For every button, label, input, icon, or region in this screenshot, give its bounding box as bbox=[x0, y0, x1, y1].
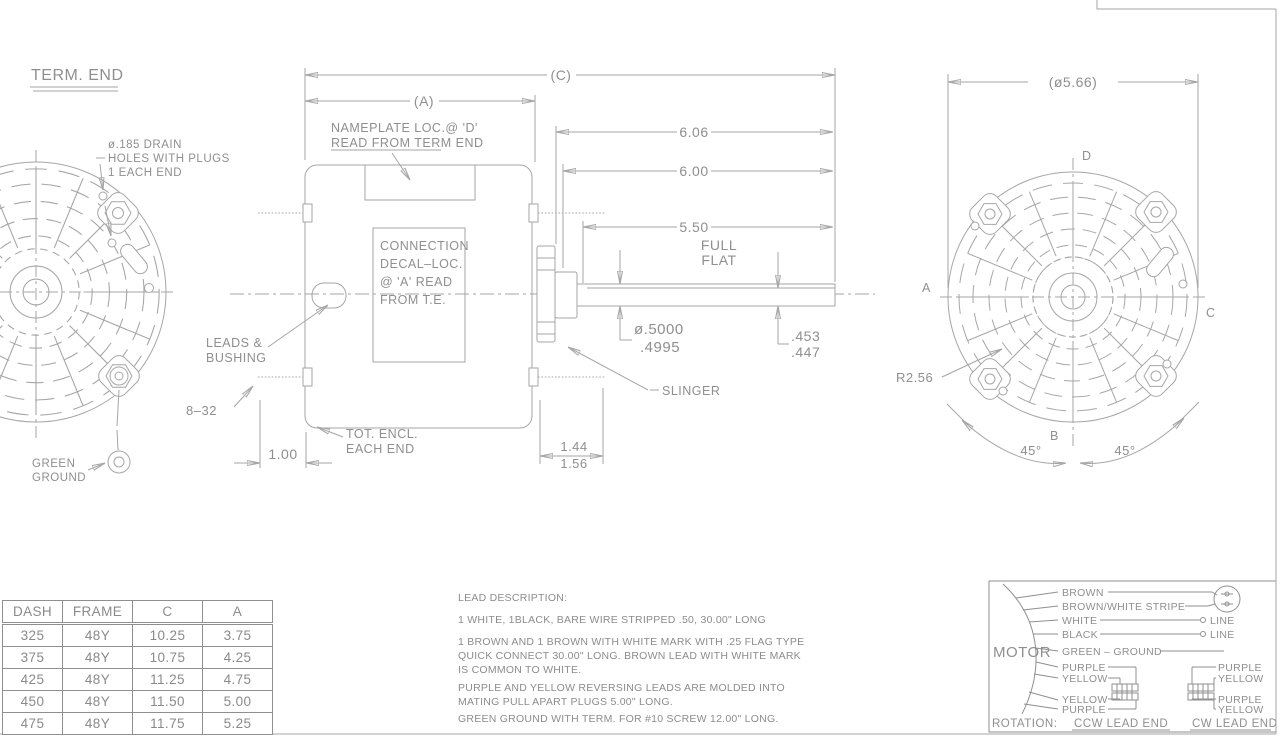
hub-dim: 1.44 bbox=[560, 439, 587, 454]
col-dash: DASH bbox=[3, 601, 63, 624]
cell: 48Y bbox=[63, 669, 133, 691]
cell: 450 bbox=[3, 691, 63, 713]
ground-label: GROUND bbox=[32, 472, 86, 484]
dim-a: (A) bbox=[414, 93, 434, 109]
wire-green-ground: GREEN – GROUND bbox=[1062, 646, 1162, 658]
line-terminal-label: LINE bbox=[1210, 629, 1235, 641]
radius-dim: R2.56 bbox=[896, 370, 933, 385]
wire-brown: BROWN bbox=[1062, 587, 1104, 599]
lead-bushing bbox=[312, 283, 346, 308]
full-flat-note: FLAT bbox=[701, 252, 736, 268]
stud-dim: 1.00 bbox=[268, 446, 297, 462]
enclosure-note: EACH END bbox=[346, 442, 415, 456]
wiring-diagram: MOTOR BROWN BROWN/WHITE STRIPE WHITE BLA… bbox=[989, 581, 1277, 732]
thread-callout: 8–32 bbox=[186, 403, 217, 418]
frame-dimension-table: DASH FRAME C A 32548Y10.253.75 37548Y10.… bbox=[2, 600, 273, 735]
wire-yellow: YELLOW bbox=[1218, 704, 1264, 716]
cell: 10.75 bbox=[133, 647, 203, 669]
drain-note: ø.185 DRAIN bbox=[108, 139, 182, 151]
wire-purple: PURPLE bbox=[1062, 704, 1106, 716]
leads-note: LEADS & bbox=[206, 336, 262, 350]
cell: 48Y bbox=[63, 624, 133, 647]
drain-hole bbox=[99, 192, 107, 200]
flat-dim: .453 bbox=[791, 328, 820, 344]
hub-dim: 1.56 bbox=[560, 456, 587, 471]
dim-od: (ø5.66) bbox=[1049, 74, 1098, 90]
nameplate-note: NAMEPLATE LOC.@ 'D' bbox=[331, 121, 478, 135]
lead-description-p2: 1 BROWN AND 1 BROWN WITH WHITE MARK WITH… bbox=[458, 636, 810, 678]
dim-606: 6.06 bbox=[679, 124, 708, 140]
cell: 4.25 bbox=[203, 647, 273, 669]
cell: 325 bbox=[3, 624, 63, 647]
col-c: C bbox=[133, 601, 203, 624]
cell: 48Y bbox=[63, 691, 133, 713]
flat-dim: .447 bbox=[791, 344, 820, 360]
drain-note: HOLES WITH PLUGS bbox=[108, 153, 230, 165]
angle-dim: 45° bbox=[1020, 443, 1041, 458]
plug-symbol bbox=[1112, 684, 1138, 691]
table-row: 45048Y11.505.00 bbox=[3, 691, 273, 713]
ccw-label: CCW LEAD END bbox=[1074, 718, 1168, 730]
table-row: 42548Y11.254.75 bbox=[3, 669, 273, 691]
point-a: A bbox=[922, 281, 931, 295]
cell: 48Y bbox=[63, 647, 133, 669]
wire-black: BLACK bbox=[1062, 629, 1098, 641]
dim-c: (C) bbox=[551, 67, 572, 83]
wire-brown-white: BROWN/WHITE STRIPE bbox=[1062, 601, 1185, 613]
cell: 4.75 bbox=[203, 669, 273, 691]
shaft-end-view: (ø5.66) D A C B R2.56 45° 45° bbox=[896, 74, 1216, 463]
green-ground-lead bbox=[108, 390, 130, 473]
enclosure-note: TOT. ENCL. bbox=[346, 427, 418, 441]
table-header-row: DASH FRAME C A bbox=[3, 601, 273, 624]
point-c: C bbox=[1206, 306, 1216, 320]
cell: 375 bbox=[3, 647, 63, 669]
motor-label: MOTOR bbox=[993, 644, 1051, 661]
table-row: 47548Y11.755.25 bbox=[3, 713, 273, 735]
cell: 425 bbox=[3, 669, 63, 691]
lead-description-title: LEAD DESCRIPTION: bbox=[458, 592, 810, 606]
decal-note: @ 'A' READ bbox=[380, 275, 452, 289]
shaft-dia: ø.5000 bbox=[634, 321, 684, 338]
motor-drawing-sheet: TERM. END ø.185 DRAIN HOLES WITH PLUGS 1… bbox=[0, 0, 1280, 738]
cell: 11.50 bbox=[133, 691, 203, 713]
cell: 475 bbox=[3, 713, 63, 735]
shaft bbox=[577, 284, 835, 306]
cell: 11.25 bbox=[133, 669, 203, 691]
full-flat-note: FULL bbox=[701, 237, 737, 253]
col-a: A bbox=[203, 601, 273, 624]
rotation-label: ROTATION: bbox=[992, 718, 1057, 730]
dim-600: 6.00 bbox=[679, 163, 708, 179]
col-frame: FRAME bbox=[63, 601, 133, 624]
shaft-dia: .4995 bbox=[640, 339, 680, 356]
side-view: (C) (A) 6.06 6.00 5.50 FULL FLAT ø.5000 … bbox=[186, 67, 875, 471]
lead-description-p3: PURPLE AND YELLOW REVERSING LEADS ARE MO… bbox=[458, 682, 810, 710]
drain-hole bbox=[108, 239, 116, 247]
wire-white: WHITE bbox=[1062, 615, 1097, 627]
table-row: 37548Y10.754.25 bbox=[3, 647, 273, 669]
leads-note: BUSHING bbox=[206, 351, 266, 365]
cell: 11.75 bbox=[133, 713, 203, 735]
term-end-view: TERM. END ø.185 DRAIN HOLES WITH PLUGS 1… bbox=[0, 67, 230, 484]
point-d: D bbox=[1082, 149, 1092, 163]
cell: 5.25 bbox=[203, 713, 273, 735]
decal-note: DECAL–LOC. bbox=[380, 257, 463, 271]
ground-label: GREEN bbox=[32, 458, 75, 470]
term-end-title: TERM. END bbox=[31, 67, 124, 84]
decal-note: CONNECTION bbox=[380, 239, 469, 253]
wire-yellow: YELLOW bbox=[1218, 673, 1264, 685]
cw-label: CW LEAD END bbox=[1192, 718, 1277, 730]
angle-dim: 45° bbox=[1114, 443, 1135, 458]
slinger-label: SLINGER bbox=[662, 384, 720, 398]
cell: 5.00 bbox=[203, 691, 273, 713]
nameplate-note: READ FROM TERM END bbox=[331, 136, 484, 150]
vent-slot bbox=[1144, 244, 1177, 279]
line-terminal-label: LINE bbox=[1210, 615, 1235, 627]
point-b: B bbox=[1050, 429, 1059, 443]
drain-note: 1 EACH END bbox=[108, 167, 182, 179]
slinger-hub bbox=[537, 246, 577, 342]
cell: 10.25 bbox=[133, 624, 203, 647]
wire-yellow: YELLOW bbox=[1062, 673, 1108, 685]
dim-550: 5.50 bbox=[679, 219, 708, 235]
table-row: 32548Y10.253.75 bbox=[3, 624, 273, 647]
decal-note: FROM T.E. bbox=[380, 293, 446, 307]
plug-symbol bbox=[1188, 684, 1214, 691]
capacitor-symbol bbox=[1214, 586, 1240, 612]
cell: 3.75 bbox=[203, 624, 273, 647]
lead-description-p1: 1 WHITE, 1BLACK, BARE WIRE STRIPPED .50,… bbox=[458, 614, 810, 628]
lead-description-p4: GREEN GROUND WITH TERM. FOR #10 SCREW 12… bbox=[458, 713, 810, 727]
nameplate-recess bbox=[365, 165, 475, 200]
cell: 48Y bbox=[63, 713, 133, 735]
